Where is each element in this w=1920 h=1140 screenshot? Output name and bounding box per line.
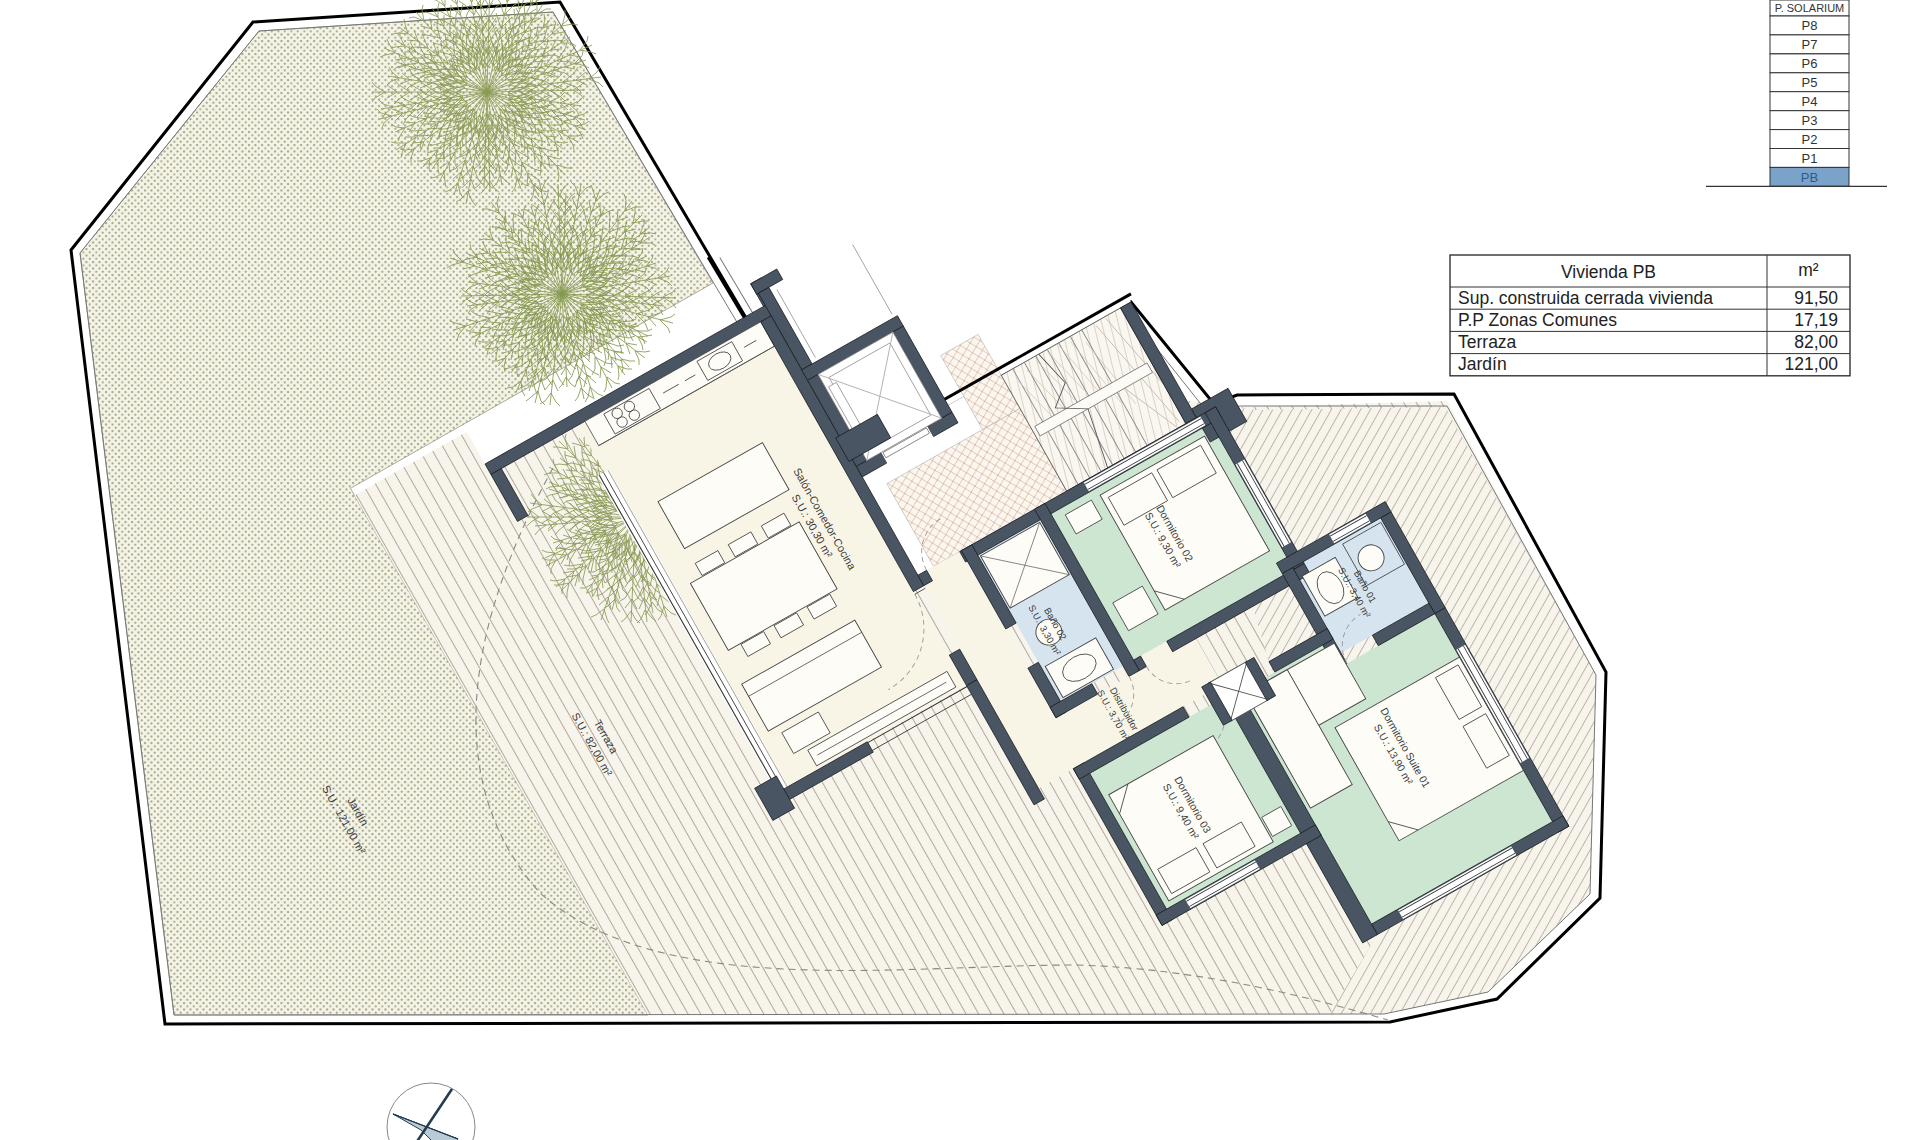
svg-text:Terraza: Terraza: [1458, 332, 1517, 352]
svg-text:P2: P2: [1802, 132, 1818, 147]
svg-text:82,00: 82,00: [1794, 332, 1838, 352]
svg-text:P7: P7: [1802, 37, 1818, 52]
svg-text:m²: m²: [1798, 260, 1819, 280]
svg-text:P6: P6: [1802, 56, 1818, 71]
svg-text:PB: PB: [1801, 170, 1818, 185]
svg-text:17,19: 17,19: [1794, 310, 1838, 330]
svg-text:P. SOLARIUM: P. SOLARIUM: [1775, 2, 1845, 14]
svg-text:Vivienda PB: Vivienda PB: [1561, 262, 1656, 282]
svg-text:P8: P8: [1802, 18, 1818, 33]
svg-text:Sup. construida cerrada vivien: Sup. construida cerrada vivienda: [1458, 288, 1713, 308]
svg-text:P.P Zonas Comunes: P.P Zonas Comunes: [1458, 310, 1617, 330]
svg-text:91,50: 91,50: [1794, 288, 1838, 308]
svg-text:Jardín: Jardín: [1458, 354, 1507, 374]
svg-text:121,00: 121,00: [1784, 354, 1838, 374]
svg-text:P3: P3: [1802, 113, 1818, 128]
svg-text:P1: P1: [1802, 151, 1818, 166]
svg-text:P5: P5: [1802, 75, 1818, 90]
svg-text:P4: P4: [1802, 94, 1818, 109]
